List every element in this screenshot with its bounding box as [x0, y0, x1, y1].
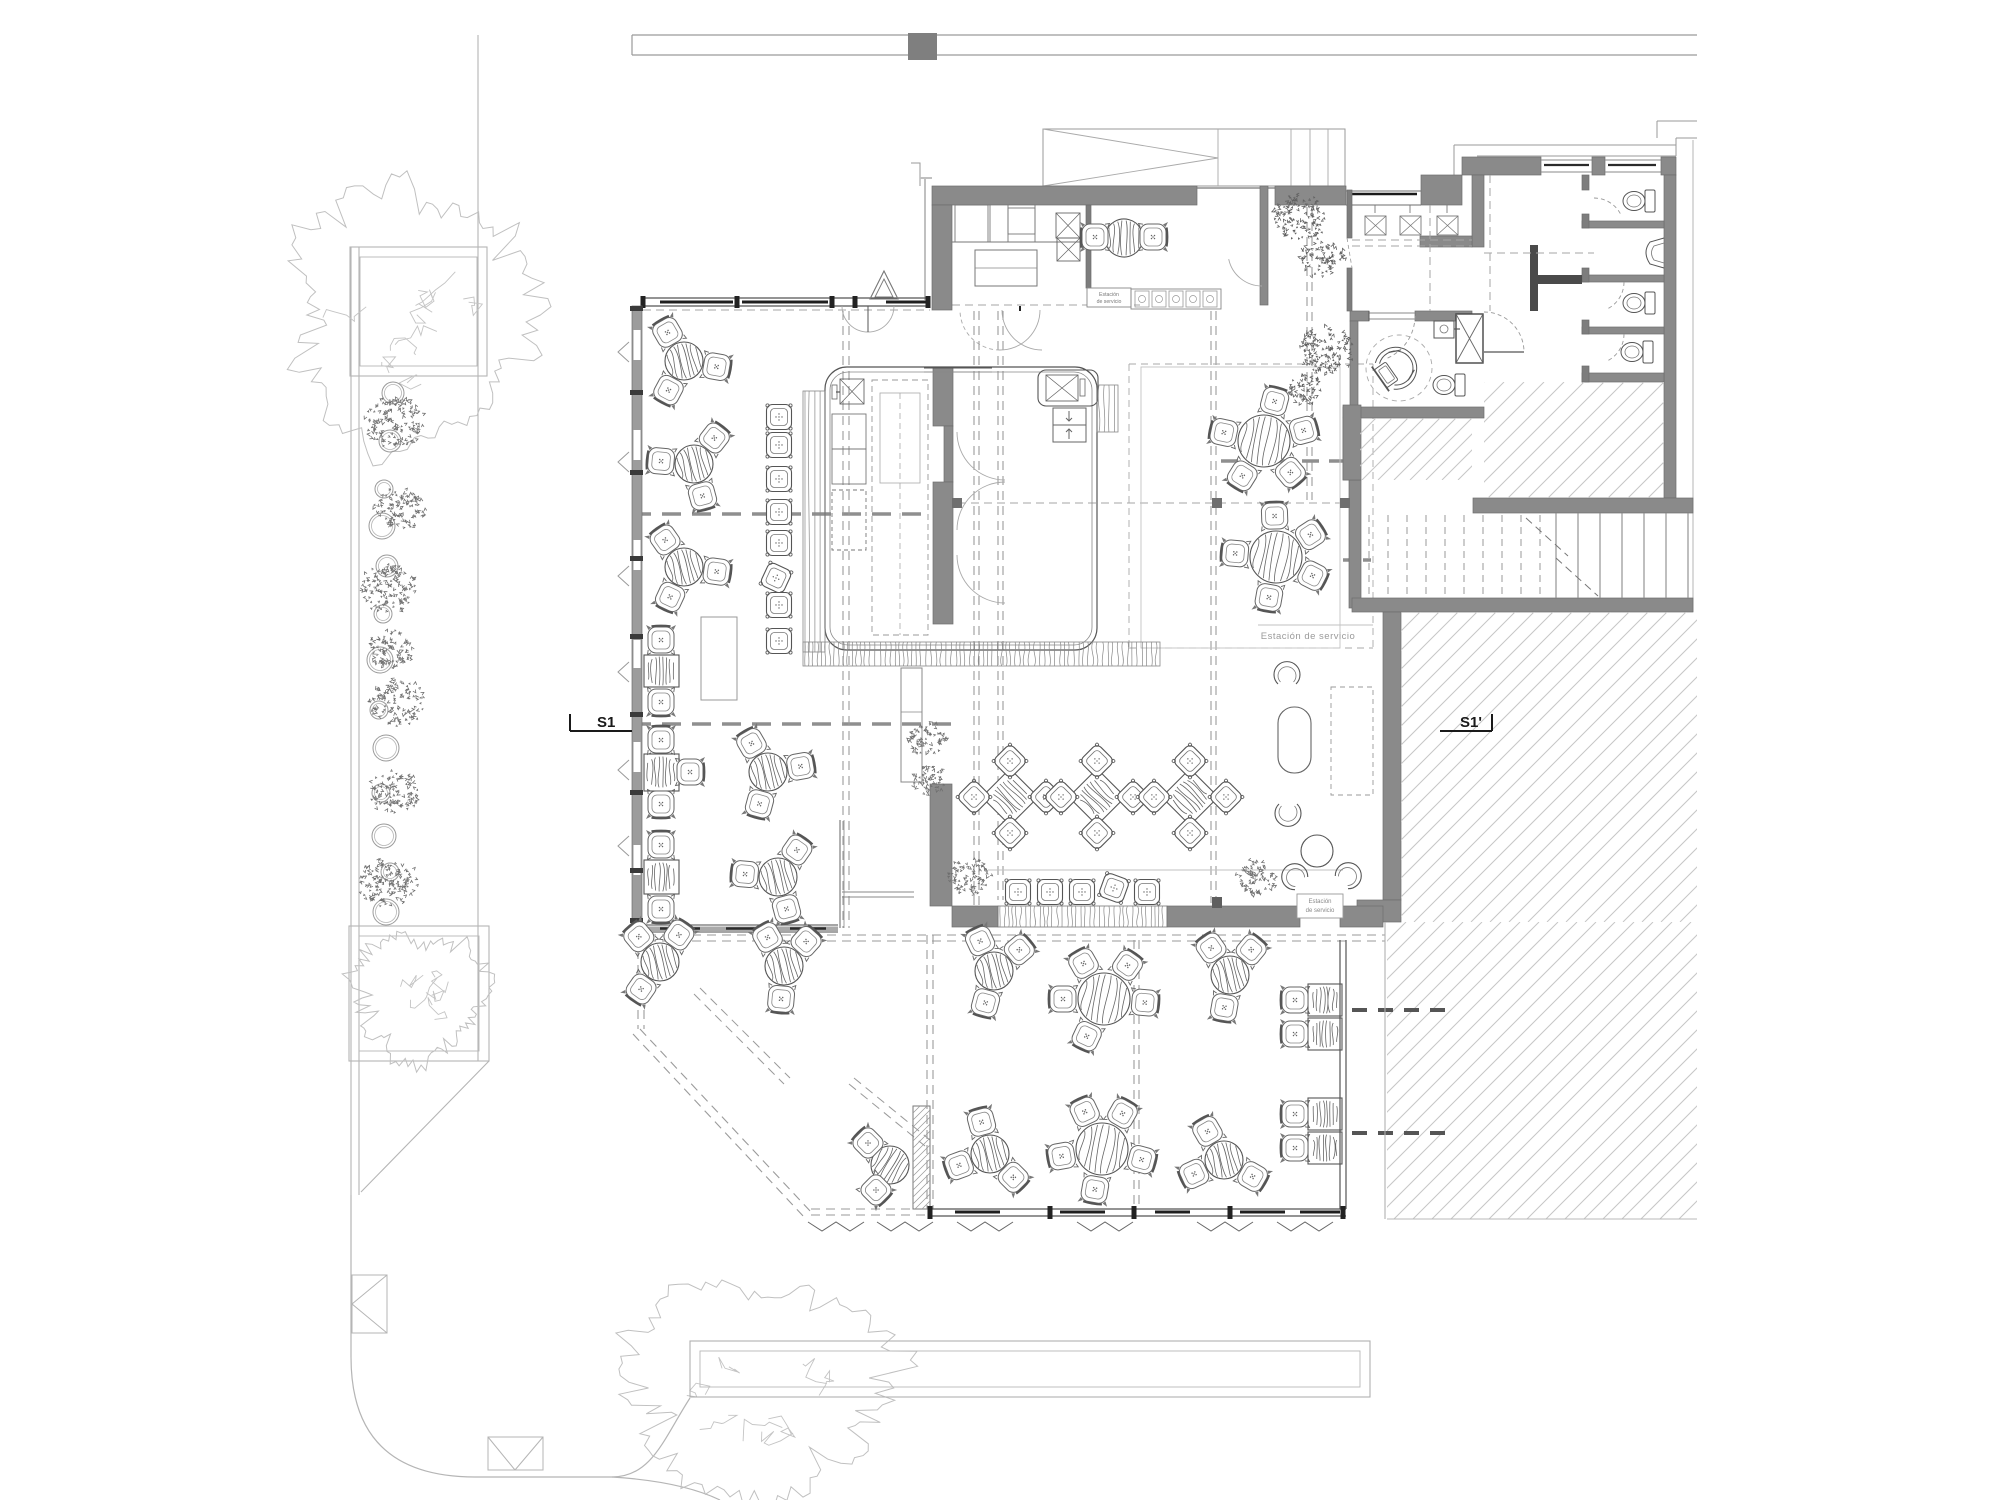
svg-text:de servicio: de servicio [1306, 908, 1335, 914]
svg-text:Estación: Estación [1308, 899, 1331, 905]
svg-text:S1': S1' [1460, 714, 1482, 731]
svg-text:de servicio: de servicio [1097, 299, 1122, 305]
svg-text:Estación de servicio: Estación de servicio [1261, 631, 1355, 642]
svg-text:Estación: Estación [1099, 292, 1119, 298]
svg-text:S1: S1 [597, 714, 615, 731]
